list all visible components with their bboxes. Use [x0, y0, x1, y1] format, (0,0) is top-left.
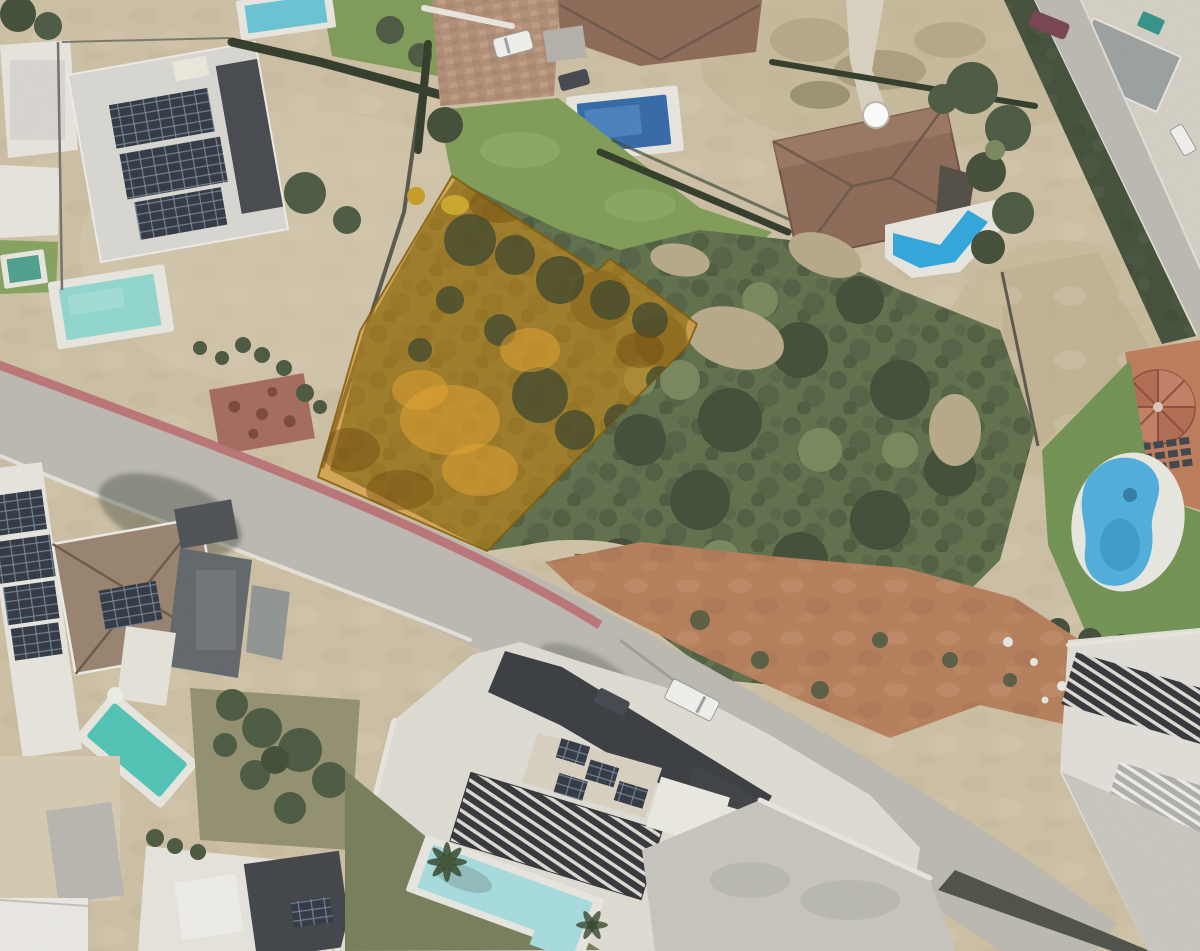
tree	[971, 230, 1005, 264]
solar-array	[0, 535, 56, 584]
tree	[427, 107, 463, 143]
bush	[254, 347, 270, 363]
tree	[333, 206, 361, 234]
garden	[190, 688, 360, 850]
tree	[376, 16, 404, 44]
rubble	[1030, 658, 1038, 666]
tree	[928, 84, 958, 114]
palm-tree	[427, 842, 467, 882]
bush	[313, 400, 327, 414]
bush	[235, 337, 251, 353]
bush	[193, 341, 207, 355]
small-pool	[0, 249, 48, 289]
bush	[296, 384, 314, 402]
satellite-dish-icon	[863, 102, 889, 128]
roof-gray-section	[543, 25, 587, 62]
golden-bush	[407, 187, 425, 205]
main-villa	[68, 42, 288, 262]
tree	[284, 172, 326, 214]
bush	[215, 351, 229, 365]
tree	[34, 12, 62, 40]
tree	[985, 140, 1005, 160]
building-roof	[10, 60, 65, 140]
solar-array	[290, 896, 333, 927]
rubble	[1042, 697, 1049, 704]
satellite-image	[0, 0, 1200, 951]
bush	[276, 360, 292, 376]
gray-slab	[46, 802, 124, 904]
solar-array	[3, 580, 60, 625]
tree	[992, 192, 1034, 234]
solar-array	[0, 489, 47, 536]
white-building	[0, 165, 60, 238]
white-terrace	[117, 626, 176, 706]
solar-array	[11, 622, 63, 660]
rubble	[1003, 637, 1013, 647]
roof-box	[174, 874, 243, 940]
